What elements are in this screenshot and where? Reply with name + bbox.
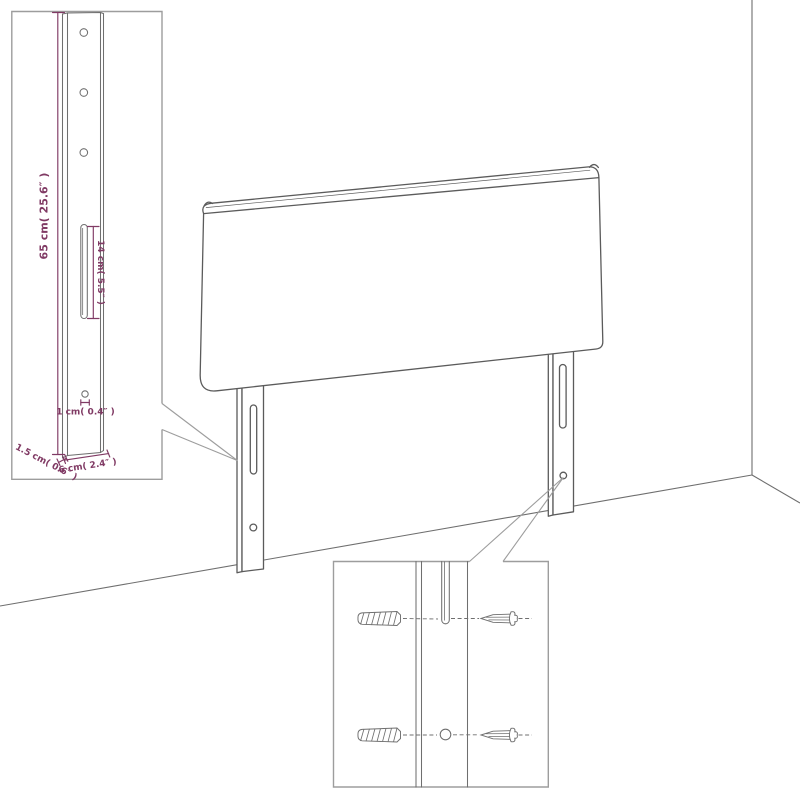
height-dimension-label: 65 cm( 25.6″ )	[38, 173, 51, 260]
headboard-assembly-diagram: 65 cm( 25.6″ ) 14 cm( 5.5″ ) 1 cm( 0.4″ …	[0, 0, 800, 800]
mounting-detail-callout	[334, 478, 564, 788]
diagram-page: 65 cm( 25.6″ ) 14 cm( 5.5″ ) 1 cm( 0.4″ …	[0, 0, 800, 800]
mount-pointer-right	[503, 478, 563, 562]
callout-pointer-lower	[162, 430, 237, 461]
mount-pointer-left	[470, 478, 564, 562]
wall-plug-icon	[358, 728, 401, 742]
headboard-panel	[200, 165, 603, 391]
left-leg-front-face	[242, 380, 264, 572]
left-leg	[237, 380, 264, 573]
mounting-detail-box	[334, 562, 549, 788]
wall-plug-icon	[358, 612, 401, 626]
hole-dimension-label: 1 cm( 0.4″ )	[56, 408, 115, 418]
right-leg-front-face	[553, 345, 574, 515]
headboard-face	[200, 178, 603, 391]
slot-dimension-label: 14 cm( 5.5″ )	[95, 240, 105, 305]
right-leg	[548, 345, 573, 516]
callout-pointer-upper	[162, 404, 237, 461]
left-leg-side-face	[237, 380, 242, 573]
floor-line-right	[752, 475, 800, 503]
